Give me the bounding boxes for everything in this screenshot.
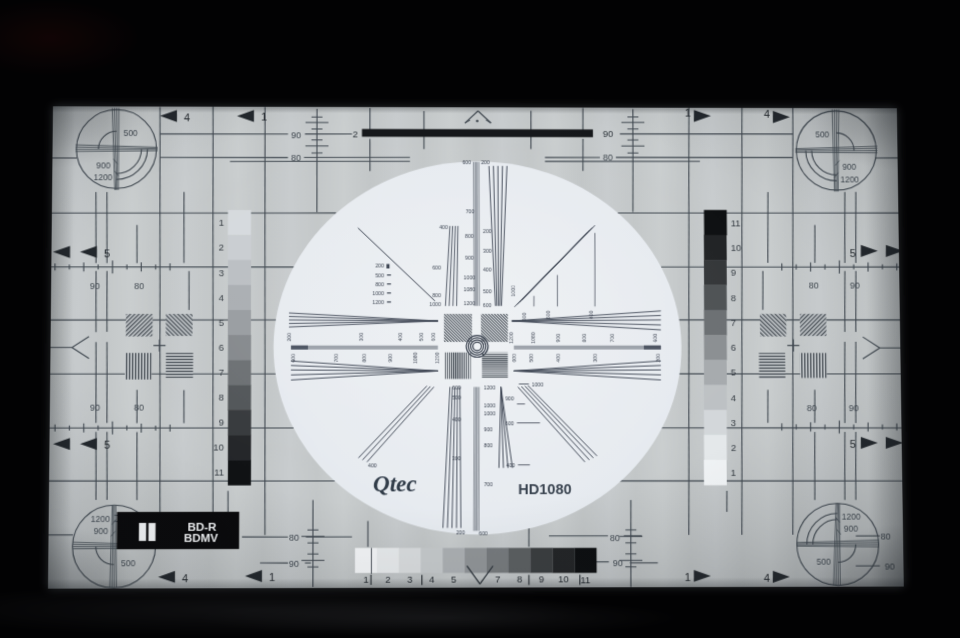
svg-text:1200: 1200	[842, 512, 861, 522]
svg-text:1: 1	[731, 467, 736, 478]
svg-text:1080: 1080	[413, 352, 419, 364]
svg-text:90: 90	[613, 558, 623, 568]
svg-text:9: 9	[219, 417, 224, 428]
svg-text:1000: 1000	[484, 403, 496, 409]
svg-text:7: 7	[495, 574, 500, 585]
svg-text:10: 10	[213, 442, 224, 453]
svg-text:300: 300	[483, 249, 492, 255]
svg-text:600: 600	[653, 334, 659, 343]
svg-text:500: 500	[452, 396, 461, 402]
svg-text:4: 4	[184, 112, 190, 124]
svg-text:11: 11	[731, 217, 741, 228]
svg-text:9: 9	[539, 574, 544, 585]
svg-text:4: 4	[731, 392, 736, 403]
svg-text:4: 4	[182, 573, 188, 585]
svg-text:11: 11	[214, 467, 224, 478]
svg-text:6: 6	[219, 342, 224, 353]
svg-text:10: 10	[558, 574, 569, 585]
svg-text:1000: 1000	[372, 291, 384, 297]
svg-text:600: 600	[432, 266, 441, 272]
svg-text:2: 2	[731, 442, 736, 453]
svg-text:500: 500	[817, 556, 832, 566]
svg-text:80: 80	[134, 281, 144, 291]
svg-text:HD1080: HD1080	[518, 482, 571, 498]
svg-text:800: 800	[432, 293, 441, 299]
svg-text:400: 400	[452, 417, 461, 423]
svg-text:80: 80	[291, 153, 301, 163]
svg-text:1000: 1000	[532, 383, 544, 389]
svg-text:1200: 1200	[372, 300, 384, 306]
svg-text:700: 700	[466, 210, 475, 216]
svg-text:2: 2	[385, 574, 390, 585]
svg-text:1: 1	[363, 574, 368, 585]
svg-text:400: 400	[483, 268, 492, 274]
svg-text:900: 900	[844, 524, 859, 534]
svg-text:800: 800	[484, 443, 493, 449]
svg-text:8: 8	[517, 574, 522, 585]
svg-text:80: 80	[610, 533, 620, 543]
svg-text:900: 900	[505, 397, 514, 403]
svg-text:4: 4	[764, 573, 770, 585]
svg-text:700: 700	[334, 354, 340, 363]
svg-text:400: 400	[439, 225, 448, 231]
svg-text:400: 400	[506, 463, 515, 469]
svg-text:800: 800	[362, 354, 368, 363]
svg-text:400: 400	[556, 354, 562, 363]
svg-text:80: 80	[134, 403, 144, 413]
svg-text:200: 200	[375, 264, 384, 270]
svg-text:1200: 1200	[464, 301, 476, 307]
svg-text:1080: 1080	[531, 332, 537, 344]
svg-text:BD-R: BD-R	[187, 522, 216, 534]
svg-text:5: 5	[104, 248, 110, 260]
svg-text:90: 90	[291, 130, 301, 140]
svg-text:1080: 1080	[464, 287, 476, 293]
svg-text:500: 500	[375, 273, 384, 279]
svg-text:3: 3	[407, 574, 412, 585]
svg-text:90: 90	[90, 403, 100, 413]
svg-text:4: 4	[429, 574, 434, 585]
svg-text:300: 300	[452, 456, 461, 462]
svg-text:500: 500	[123, 128, 138, 138]
svg-text:80: 80	[809, 281, 819, 291]
svg-text:600: 600	[479, 531, 488, 537]
svg-text:1200: 1200	[91, 514, 111, 524]
svg-text:90: 90	[289, 559, 299, 569]
svg-text:600: 600	[462, 160, 471, 166]
svg-text:90: 90	[849, 403, 859, 413]
svg-text:3: 3	[731, 417, 736, 428]
svg-text:10: 10	[731, 242, 742, 253]
svg-text:900: 900	[556, 333, 562, 342]
svg-text:1: 1	[269, 572, 275, 584]
svg-text:1200: 1200	[94, 172, 113, 182]
svg-text:5: 5	[850, 439, 856, 451]
svg-text:1200: 1200	[484, 386, 496, 392]
svg-text:7: 7	[219, 367, 224, 378]
svg-text:200: 200	[481, 160, 490, 166]
svg-text:700: 700	[484, 482, 493, 488]
svg-text:1200: 1200	[435, 352, 441, 364]
svg-text:80: 80	[881, 532, 891, 542]
svg-text:900: 900	[96, 161, 111, 171]
svg-text:80: 80	[603, 153, 613, 163]
svg-text:90: 90	[850, 281, 860, 291]
svg-text:5: 5	[451, 574, 456, 585]
svg-text:BDMV: BDMV	[184, 533, 219, 545]
svg-text:200: 200	[483, 229, 492, 235]
svg-text:90: 90	[885, 562, 895, 572]
svg-text:900: 900	[484, 427, 493, 433]
svg-text:400: 400	[398, 332, 404, 341]
svg-text:700: 700	[610, 333, 616, 342]
svg-text:5: 5	[731, 367, 736, 378]
svg-text:9: 9	[731, 267, 736, 278]
svg-text:400: 400	[368, 463, 377, 469]
svg-text:5: 5	[219, 317, 224, 328]
svg-text:800: 800	[582, 333, 588, 342]
svg-text:5: 5	[850, 248, 856, 260]
svg-text:600: 600	[546, 311, 552, 320]
svg-text:500: 500	[483, 289, 492, 295]
svg-text:200: 200	[656, 354, 662, 363]
svg-text:800: 800	[465, 234, 474, 240]
svg-text:600: 600	[452, 386, 461, 392]
svg-text:1: 1	[219, 217, 224, 228]
svg-text:800: 800	[522, 312, 528, 321]
svg-text:200: 200	[287, 333, 293, 342]
svg-text:1000: 1000	[511, 285, 517, 297]
svg-text:2: 2	[353, 128, 358, 139]
svg-text:900: 900	[842, 162, 856, 172]
svg-text:3: 3	[219, 267, 224, 278]
svg-text:1: 1	[261, 112, 267, 124]
svg-text:500: 500	[815, 130, 829, 140]
svg-text:90: 90	[90, 281, 100, 291]
svg-text:4: 4	[764, 109, 770, 121]
svg-text:5: 5	[104, 440, 110, 452]
svg-text:2: 2	[219, 242, 224, 253]
svg-text:6: 6	[731, 342, 736, 353]
svg-text:500: 500	[529, 354, 535, 363]
svg-text:1000: 1000	[484, 411, 496, 417]
svg-text:1: 1	[685, 108, 691, 120]
svg-text:1200: 1200	[509, 332, 515, 344]
svg-text:1: 1	[685, 572, 691, 584]
svg-text:600: 600	[483, 303, 492, 309]
svg-text:7: 7	[731, 317, 736, 328]
svg-text:600: 600	[431, 332, 437, 341]
svg-text:8: 8	[731, 292, 736, 303]
svg-text:600: 600	[291, 354, 297, 363]
svg-text:900: 900	[388, 354, 394, 363]
svg-text:90: 90	[603, 128, 614, 139]
svg-text:1000: 1000	[429, 302, 441, 308]
svg-text:1200: 1200	[840, 174, 859, 184]
svg-text:11: 11	[580, 574, 590, 585]
svg-text:300: 300	[359, 332, 365, 341]
svg-text:80: 80	[289, 533, 299, 543]
svg-text:600: 600	[505, 421, 514, 427]
svg-text:300: 300	[593, 354, 599, 363]
svg-text:800: 800	[375, 282, 384, 288]
svg-text:4: 4	[219, 292, 224, 303]
svg-text:500: 500	[419, 332, 425, 341]
svg-text:600: 600	[512, 354, 518, 363]
svg-text:500: 500	[121, 558, 136, 568]
svg-text:8: 8	[219, 392, 224, 403]
svg-text:200: 200	[456, 531, 465, 537]
svg-text:Qtec: Qtec	[373, 471, 417, 496]
svg-text:900: 900	[94, 526, 109, 536]
svg-text:400: 400	[589, 311, 595, 320]
svg-text:900: 900	[465, 256, 474, 262]
svg-text:1000: 1000	[464, 275, 476, 281]
svg-text:80: 80	[807, 403, 817, 413]
